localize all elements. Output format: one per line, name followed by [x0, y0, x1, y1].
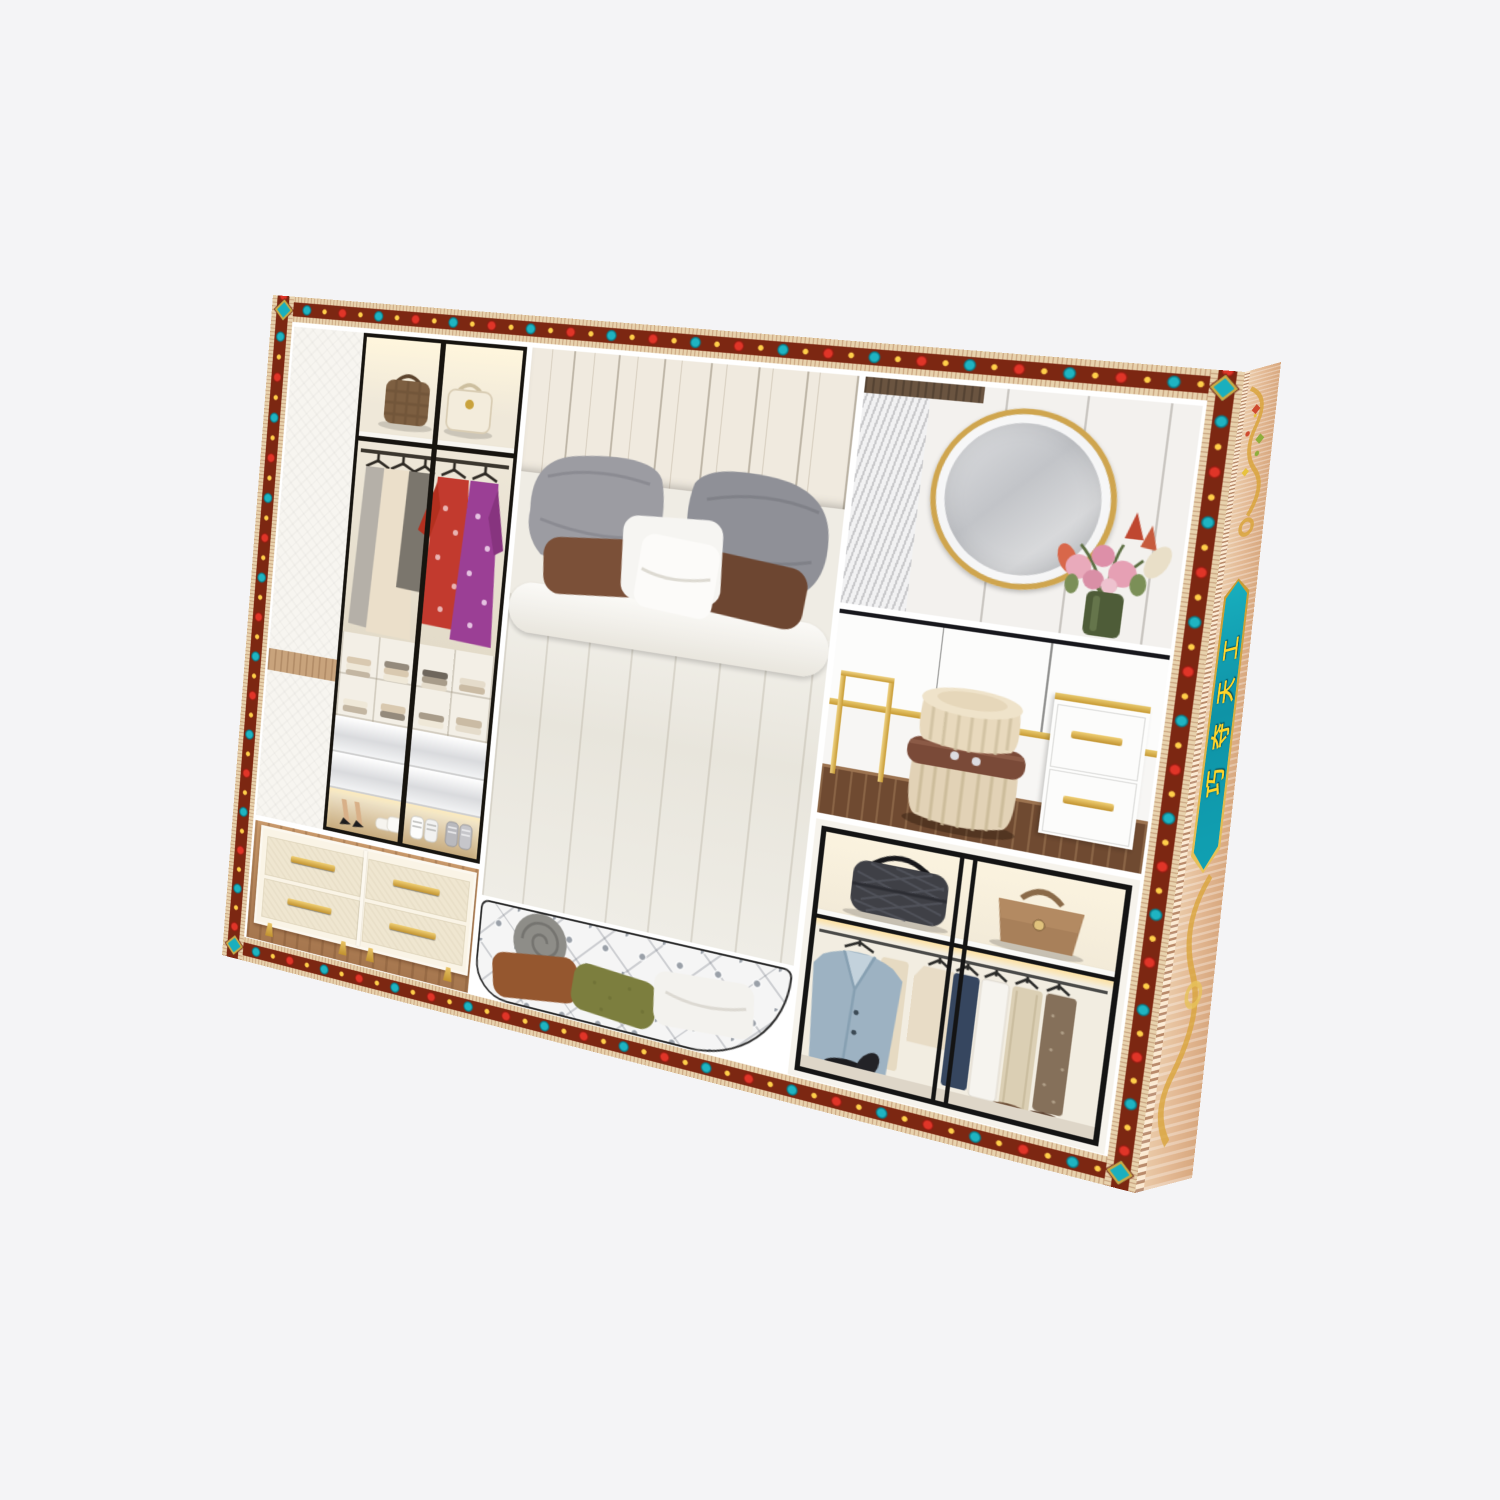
drawer-unit	[1038, 692, 1151, 850]
panel-wardrobe	[256, 327, 527, 864]
unit-drawer	[1050, 704, 1146, 782]
photo-stage: 巧夺天工	[0, 0, 1500, 1500]
unit-drawer	[1042, 769, 1138, 847]
flower-vase-illustration	[1031, 491, 1190, 649]
pouf-illustration	[886, 671, 1049, 850]
panel-vanity	[841, 377, 1203, 649]
panel-bed	[482, 347, 860, 965]
box-front-face	[222, 295, 1245, 1193]
